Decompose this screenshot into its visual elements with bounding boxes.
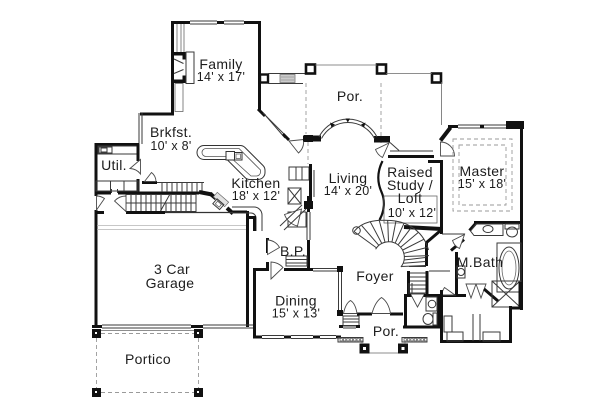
svg-text:15' x 13': 15' x 13' [272, 307, 320, 321]
svg-text:14' x 20': 14' x 20' [324, 184, 372, 198]
svg-text:Brkfst.: Brkfst. [150, 124, 192, 140]
svg-text:B.P.: B.P. [280, 243, 306, 259]
svg-text:Por.: Por. [373, 323, 399, 339]
svg-text:Portico: Portico [125, 351, 171, 367]
svg-text:Garage: Garage [146, 275, 195, 291]
svg-text:14' x 17': 14' x 17' [197, 70, 245, 84]
svg-text:M.Bath: M.Bath [457, 254, 503, 270]
svg-text:10' x 12': 10' x 12' [388, 206, 436, 220]
svg-text:18' x 12': 18' x 12' [232, 189, 280, 203]
svg-text:10' x 8': 10' x 8' [150, 139, 191, 153]
svg-text:Por.: Por. [337, 88, 363, 104]
svg-text:Loft: Loft [398, 190, 423, 206]
svg-text:15' x 18': 15' x 18' [458, 177, 506, 191]
svg-text:Foyer: Foyer [356, 268, 394, 284]
svg-text:Util.: Util. [101, 157, 127, 173]
